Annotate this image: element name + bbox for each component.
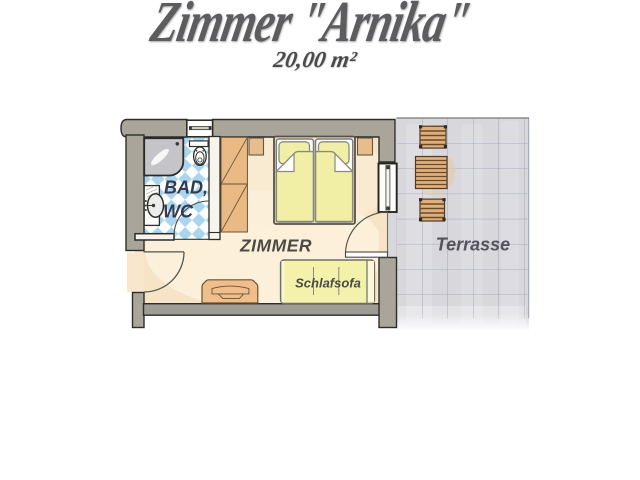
svg-text:BAD,: BAD, (164, 178, 208, 198)
svg-text:WC: WC (163, 202, 194, 222)
svg-text:Terrasse: Terrasse (436, 235, 510, 255)
svg-text:ZIMMER: ZIMMER (239, 236, 312, 256)
svg-text:Schlafsofa: Schlafsofa (295, 275, 361, 290)
